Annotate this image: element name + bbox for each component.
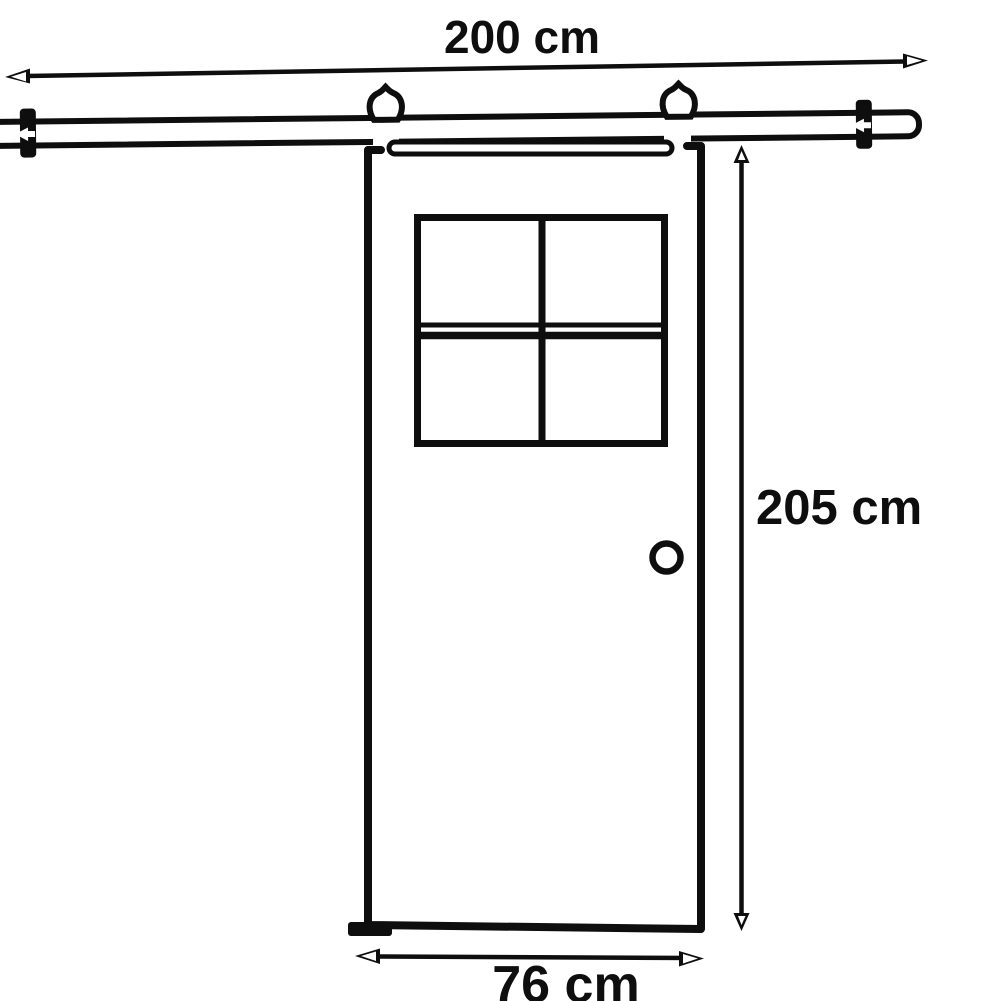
door-height-dimension: 205 cm: [734, 145, 923, 931]
rail-width-label: 200 cm: [444, 11, 600, 63]
door-height-label: 205 cm: [756, 481, 922, 535]
rail-bracket-left-notch-tail: [26, 131, 35, 137]
rail-bracket-right-notch-tail: [862, 122, 871, 128]
door-floor-guide: [348, 922, 392, 936]
rail-width-dimension-line: [27, 62, 905, 77]
door-top-edge: [389, 142, 672, 154]
rail-width-dimension: 200 cm: [5, 11, 928, 84]
sliding-door-dimension-diagram: 200 cm: [0, 0, 1000, 1001]
door-width-label: 76 cm: [492, 956, 639, 1001]
door: [348, 142, 701, 936]
door-knob: [653, 544, 681, 572]
hanger-roller-left: [369, 87, 402, 120]
door-width-dimension: 76 cm: [355, 949, 704, 1001]
hanger-roller-right: [662, 84, 695, 117]
diagram-canvas: 200 cm: [0, 0, 1000, 1001]
